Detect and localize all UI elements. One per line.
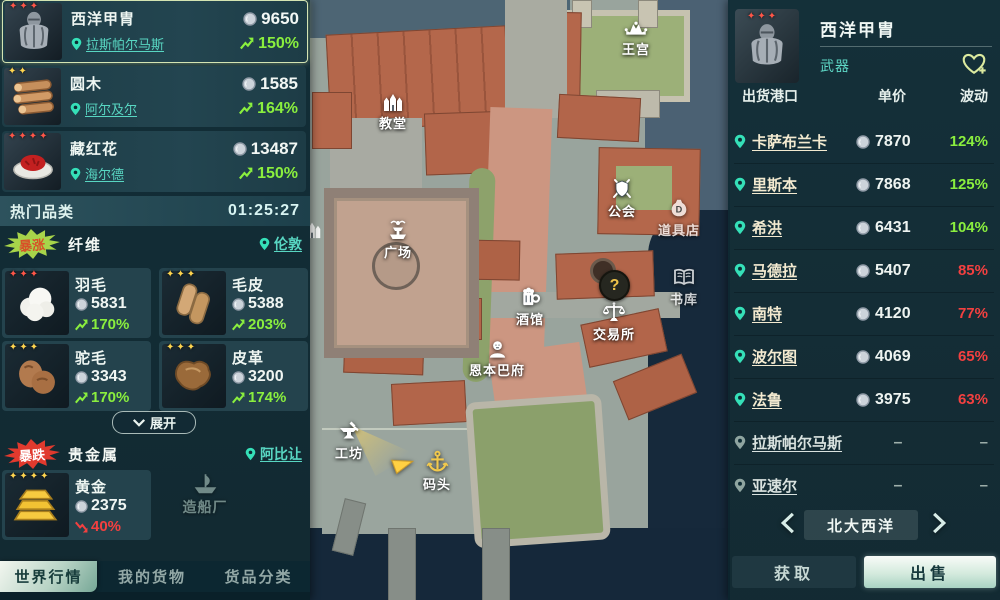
item-image-armor: ✦✦✦ bbox=[5, 3, 62, 60]
detail-item-image: ✦✦✦ bbox=[735, 9, 799, 83]
port-row[interactable]: 卡萨布兰卡 7870 124% bbox=[734, 120, 994, 164]
tab-my-goods[interactable]: 我的货物 bbox=[97, 561, 207, 592]
item-stars: ✦✦✦✦ bbox=[9, 471, 51, 482]
item-price: 9650 bbox=[261, 9, 299, 29]
port-name-link[interactable]: 里斯本 bbox=[752, 174, 797, 195]
slump-section-header: 暴跌 贵金属 阿比让 bbox=[0, 439, 310, 469]
port-change: – bbox=[980, 477, 988, 494]
port-change: 125% bbox=[950, 176, 988, 193]
coin-icon bbox=[856, 178, 870, 192]
poi-item-shop[interactable]: 道具店 bbox=[658, 198, 700, 239]
tab-label: 货品分类 bbox=[224, 566, 292, 587]
item-stars: ✦✦✦ bbox=[9, 1, 40, 12]
coin-icon bbox=[75, 298, 88, 311]
chevron-down-icon bbox=[132, 418, 146, 427]
item-price: 13487 bbox=[251, 139, 298, 159]
poi-dock[interactable]: 码头 bbox=[423, 450, 451, 493]
item-price: 5831 bbox=[91, 295, 127, 313]
item-location-link[interactable]: 拉斯帕尔马斯 bbox=[86, 34, 164, 53]
question-mark-icon: ? bbox=[610, 277, 620, 295]
item-image-fur: ✦✦✦ bbox=[162, 271, 226, 335]
col-price: 单价 bbox=[852, 86, 932, 106]
region-next-arrow[interactable] bbox=[932, 512, 947, 539]
port-price: – bbox=[856, 477, 940, 495]
item-image-leather: ✦✦✦ bbox=[162, 344, 226, 408]
port-change: 85% bbox=[958, 262, 988, 279]
coin-icon bbox=[232, 371, 245, 384]
map-pin-icon bbox=[70, 167, 81, 181]
item-change: 150% bbox=[258, 35, 299, 53]
price-table-header: 出货港口 单价 波动 bbox=[728, 86, 1000, 108]
map-pin-icon bbox=[734, 478, 746, 493]
coin-icon bbox=[232, 298, 245, 311]
port-row[interactable]: 里斯本 7868 125% bbox=[734, 163, 994, 207]
detail-item-category: 武器 bbox=[820, 56, 850, 76]
item-image-saffron: ✦✦✦✦ bbox=[4, 133, 61, 190]
port-price: 7870 bbox=[875, 133, 911, 151]
port-name-link[interactable]: 南特 bbox=[752, 303, 782, 324]
goods-tile-feather[interactable]: ✦✦✦ 羽毛 5831 170% bbox=[2, 268, 151, 338]
map-pin-icon bbox=[734, 220, 746, 235]
item-price: 5388 bbox=[248, 295, 284, 313]
item-name: 藏红花 bbox=[70, 138, 118, 159]
port-row[interactable]: 波尔图 4069 65% bbox=[734, 335, 994, 379]
poi-tavern-label: 酒馆 bbox=[516, 309, 544, 328]
item-price: 3200 bbox=[248, 368, 284, 386]
coin-icon bbox=[856, 135, 870, 149]
expand-button[interactable]: 展开 bbox=[112, 411, 196, 434]
poi-dock-label: 码头 bbox=[423, 474, 451, 493]
poi-workshop[interactable]: 工坊 bbox=[335, 420, 363, 462]
countdown-timer: 01:25:27 bbox=[228, 202, 300, 220]
tab-goods-categories[interactable]: 货品分类 bbox=[207, 561, 310, 592]
market-panel: ✦✦✦ 西洋甲胄 9650 拉斯帕尔马斯 150% ✦✦ bbox=[0, 0, 310, 600]
item-change: 170% bbox=[91, 389, 129, 406]
expand-label: 展开 bbox=[150, 413, 176, 432]
port-name-link[interactable]: 卡萨布兰卡 bbox=[752, 131, 827, 152]
map-pin-icon bbox=[71, 37, 82, 51]
coin-icon bbox=[856, 307, 870, 321]
port-row[interactable]: 拉斯帕尔马斯 – – bbox=[734, 421, 994, 465]
item-change: 170% bbox=[91, 316, 129, 333]
goods-tile-camel-hair[interactable]: ✦✦✦ 驼毛 3343 170% bbox=[2, 341, 151, 411]
port-change: 65% bbox=[958, 348, 988, 365]
item-price: 2375 bbox=[91, 497, 127, 515]
item-change: 203% bbox=[248, 316, 286, 333]
map-pin-icon bbox=[734, 177, 746, 192]
poi-mansion-label: 恩本巴府 bbox=[469, 360, 525, 379]
map-pin-icon bbox=[734, 392, 746, 407]
poi-guild[interactable]: 公会 bbox=[608, 176, 636, 220]
trend-up-icon bbox=[240, 36, 255, 51]
port-row[interactable]: 马德拉 5407 85% bbox=[734, 249, 994, 293]
port-row[interactable]: 法鲁 3975 63% bbox=[734, 378, 994, 422]
item-price: 1585 bbox=[260, 74, 298, 94]
map-pin-icon bbox=[734, 349, 746, 364]
coin-icon bbox=[242, 77, 256, 91]
port-price: – bbox=[856, 434, 940, 452]
item-image-logs: ✦✦ bbox=[4, 68, 61, 125]
item-name: 黄金 bbox=[75, 476, 107, 497]
item-change: 174% bbox=[248, 389, 286, 406]
poi-item-shop-label: 道具店 bbox=[658, 220, 700, 239]
sell-button[interactable]: 出售 bbox=[864, 556, 996, 588]
port-change: 104% bbox=[950, 219, 988, 236]
col-fluctuation: 波动 bbox=[960, 86, 988, 106]
item-stars: ✦✦✦✦ bbox=[8, 131, 50, 142]
goods-tile-gold[interactable]: ✦✦✦✦ 黄金 2375 40% bbox=[2, 470, 151, 540]
poi-tavern[interactable]: 酒馆 bbox=[516, 286, 544, 328]
port-price: 7868 bbox=[875, 176, 911, 194]
goods-tile-fur[interactable]: ✦✦✦ 毛皮 5388 203% bbox=[159, 268, 308, 338]
map-pin-icon bbox=[734, 435, 746, 450]
title-divider bbox=[820, 46, 992, 47]
featured-card-saffron[interactable]: ✦✦✦✦ 藏红花 13487 海尔德 150% bbox=[2, 131, 306, 192]
featured-card-armor[interactable]: ✦✦✦ 西洋甲胄 9650 拉斯帕尔马斯 150% bbox=[2, 0, 308, 63]
port-change: – bbox=[980, 434, 988, 451]
port-name-link[interactable]: 拉斯帕尔马斯 bbox=[752, 432, 842, 453]
trend-down-icon bbox=[75, 520, 89, 534]
port-row[interactable]: 希洪 6431 104% bbox=[734, 206, 994, 250]
trend-up-icon bbox=[75, 318, 89, 332]
item-change: 150% bbox=[257, 165, 298, 183]
exchange-quest-bubble[interactable]: ? bbox=[599, 270, 630, 301]
trend-up-icon bbox=[75, 391, 89, 405]
port-name-link[interactable]: 希洪 bbox=[752, 217, 782, 238]
item-name: 西洋甲胄 bbox=[71, 8, 135, 29]
item-stars: ✦✦✦ bbox=[9, 342, 40, 353]
trend-up-icon bbox=[239, 101, 254, 116]
port-name-link[interactable]: 马德拉 bbox=[752, 260, 797, 281]
tab-label: 我的货物 bbox=[118, 566, 186, 587]
port-price: 4069 bbox=[875, 348, 911, 366]
slump-location-link[interactable]: 阿比让 bbox=[260, 444, 302, 464]
item-stars: ✦✦✦ bbox=[166, 269, 197, 280]
item-name: 驼毛 bbox=[75, 347, 107, 368]
item-location-link[interactable]: 海尔德 bbox=[85, 164, 124, 183]
trend-up-icon bbox=[232, 318, 246, 332]
slump-badge: 暴跌 bbox=[3, 437, 61, 471]
item-name: 毛皮 bbox=[232, 274, 264, 295]
surge-category: 纤维 bbox=[68, 234, 102, 255]
trend-up-icon bbox=[232, 391, 246, 405]
poi-plaza[interactable]: 广场 bbox=[384, 218, 412, 261]
coin-icon bbox=[243, 12, 257, 26]
map-pin-icon bbox=[734, 134, 746, 149]
poi-palace[interactable]: 王宫 bbox=[622, 16, 650, 58]
map-pin-icon bbox=[734, 263, 746, 278]
coin-icon bbox=[856, 221, 870, 235]
map-pin-icon bbox=[734, 306, 746, 321]
item-name: 圆木 bbox=[70, 73, 102, 94]
map-pin-icon bbox=[70, 102, 81, 116]
surge-badge: 暴涨 bbox=[3, 227, 61, 261]
goods-tile-leather[interactable]: ✦✦✦ 皮革 3200 174% bbox=[159, 341, 308, 411]
region-prev-arrow[interactable] bbox=[780, 512, 795, 539]
item-change: 164% bbox=[257, 100, 298, 118]
item-detail-panel: ✦✦✦ 西洋甲胄 武器 出货港口 单价 波动 卡萨布兰卡 7870 124% 里… bbox=[728, 0, 1000, 600]
coin-icon bbox=[856, 350, 870, 364]
item-price: 3343 bbox=[91, 368, 127, 386]
port-price: 6431 bbox=[875, 219, 911, 237]
surge-section-header: 暴涨 纤维 伦敦 bbox=[0, 229, 310, 259]
featured-card-logs[interactable]: ✦✦ 圆木 1585 阿尔及尔 164% bbox=[2, 66, 306, 127]
item-stars: ✦✦ bbox=[8, 66, 29, 77]
clipped-poi-icon bbox=[310, 218, 324, 262]
coin-icon bbox=[856, 393, 870, 407]
item-name: 羽毛 bbox=[75, 274, 107, 295]
coin-icon bbox=[233, 142, 247, 156]
port-name-link[interactable]: 亚速尔 bbox=[752, 475, 797, 496]
tab-label: 世界行情 bbox=[14, 566, 82, 587]
hot-categories-title: 热门品类 bbox=[10, 201, 74, 222]
map-pin-icon bbox=[245, 447, 256, 461]
poi-library[interactable]: 书库 bbox=[670, 266, 698, 308]
poi-shipyard-label: 造船厂 bbox=[183, 497, 228, 517]
port-change: 124% bbox=[950, 133, 988, 150]
map-pin-icon bbox=[259, 237, 270, 251]
region-pager: 北大西洋 bbox=[728, 508, 1000, 542]
item-stars: ✦✦✦ bbox=[9, 269, 40, 280]
item-stars: ✦✦✦ bbox=[166, 342, 197, 353]
item-image-feather: ✦✦✦ bbox=[5, 271, 69, 335]
poi-shipyard[interactable]: 造船厂 bbox=[183, 472, 228, 517]
poi-plaza-label: 广场 bbox=[384, 242, 412, 261]
detail-item-stars: ✦✦✦ bbox=[747, 11, 778, 22]
port-name-link[interactable]: 法鲁 bbox=[752, 389, 782, 410]
port-change: 63% bbox=[958, 391, 988, 408]
poi-guild-label: 公会 bbox=[608, 201, 636, 220]
poi-mansion[interactable]: 恩本巴府 bbox=[469, 338, 525, 379]
poi-workshop-label: 工坊 bbox=[335, 443, 363, 462]
col-port: 出货港口 bbox=[742, 86, 798, 106]
detail-item-name: 西洋甲胄 bbox=[820, 16, 896, 41]
coin-icon bbox=[75, 500, 88, 513]
item-name: 皮革 bbox=[232, 347, 264, 368]
port-row[interactable]: 亚速尔 – – bbox=[734, 464, 994, 507]
region-name[interactable]: 北大西洋 bbox=[804, 510, 918, 540]
poi-exchange-label: 交易所 bbox=[593, 324, 635, 343]
poi-exchange[interactable]: 交易所 bbox=[593, 301, 635, 343]
tabbar-base-strip bbox=[0, 592, 310, 600]
port-change: 77% bbox=[958, 305, 988, 322]
acquire-button[interactable]: 获取 bbox=[732, 556, 856, 588]
hot-categories-header: 热门品类 01:25:27 bbox=[0, 196, 310, 226]
favorite-heart-icon[interactable] bbox=[960, 50, 988, 83]
coin-icon bbox=[856, 264, 870, 278]
port-price: 3975 bbox=[875, 391, 911, 409]
surge-location-link[interactable]: 伦敦 bbox=[274, 234, 302, 254]
port-name-link[interactable]: 波尔图 bbox=[752, 346, 797, 367]
item-image-gold: ✦✦✦✦ bbox=[5, 473, 69, 537]
port-row[interactable]: 南特 4120 77% bbox=[734, 292, 994, 336]
item-change: 40% bbox=[91, 518, 121, 535]
port-price: 5407 bbox=[875, 262, 911, 280]
port-price: 4120 bbox=[875, 305, 911, 323]
tab-world-market[interactable]: 世界行情 bbox=[0, 561, 97, 592]
poi-church-label: 教堂 bbox=[379, 113, 407, 132]
poi-church[interactable]: 教堂 bbox=[379, 90, 407, 132]
coin-icon bbox=[75, 371, 88, 384]
item-image-camel-hair: ✦✦✦ bbox=[5, 344, 69, 408]
item-location-link[interactable]: 阿尔及尔 bbox=[85, 99, 137, 118]
trend-up-icon bbox=[239, 166, 254, 181]
poi-library-label: 书库 bbox=[670, 289, 698, 308]
slump-category: 贵金属 bbox=[68, 444, 119, 465]
poi-palace-label: 王宫 bbox=[622, 39, 650, 58]
game-screen: 教堂 王宫 公会 道具店 广场 书库 酒馆 ? bbox=[0, 0, 1000, 600]
